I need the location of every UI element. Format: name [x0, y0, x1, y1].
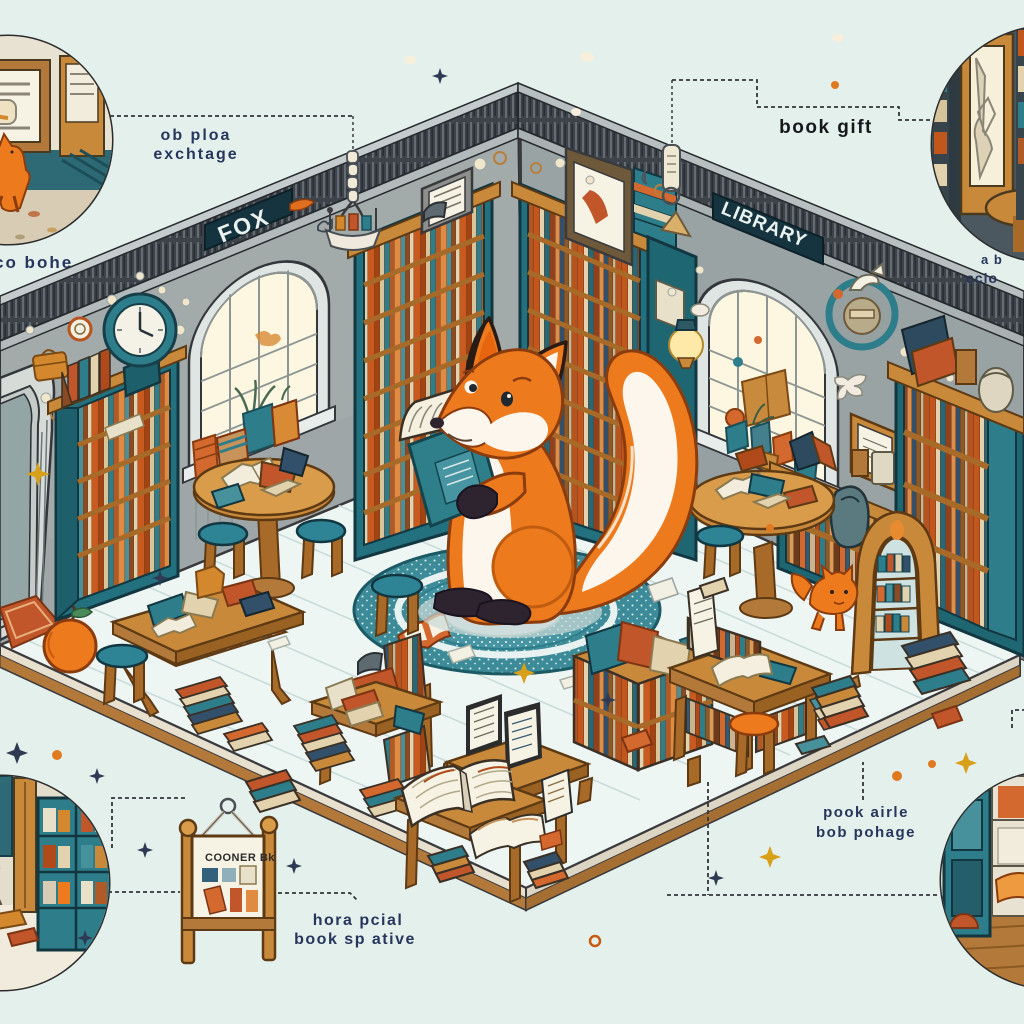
svg-text:co bohe: co bohe: [0, 253, 73, 272]
svg-text:book sp ative: book sp ative: [294, 931, 416, 948]
svg-text:hora pcial: hora pcial: [313, 912, 404, 929]
svg-text:COONER Bk: COONER Bk: [205, 852, 275, 864]
svg-text:a b: a b: [981, 252, 1003, 267]
svg-text:cclo: cclo: [966, 270, 998, 286]
svg-text:pook airle: pook airle: [823, 804, 909, 821]
svg-text:book gift: book gift: [779, 117, 873, 138]
svg-text:ob ploa: ob ploa: [161, 127, 232, 144]
svg-text:exchtage: exchtage: [153, 146, 238, 163]
svg-text:bob pohage: bob pohage: [816, 824, 916, 841]
